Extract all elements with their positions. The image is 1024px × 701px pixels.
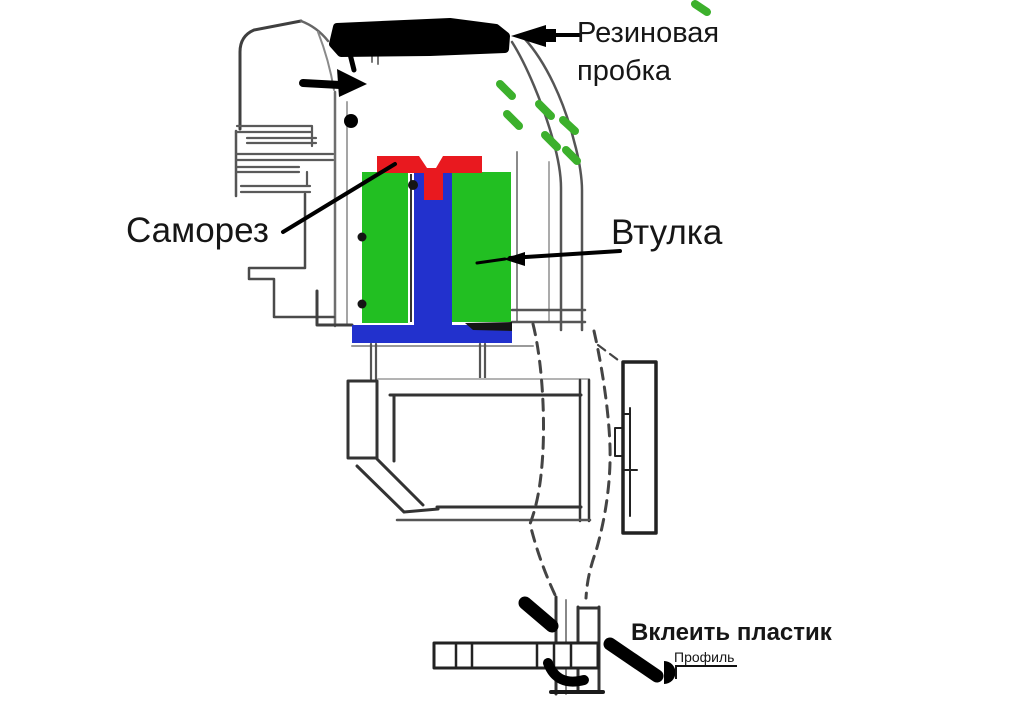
plug-dot-mark <box>344 114 358 128</box>
profile-underline <box>676 666 737 679</box>
glue-marker-stroke-upper <box>525 603 552 626</box>
left-arrow-head <box>337 69 367 97</box>
bushing-callout-line <box>510 251 620 258</box>
bushing-label: Втулка <box>611 213 722 253</box>
diagram-svg <box>0 0 1024 701</box>
rubber-plug-marker <box>333 22 506 53</box>
glue-marker-stroke-lower <box>610 644 657 676</box>
rubber-plug-label: Резиновая пробка <box>577 14 745 90</box>
diagram-canvas: Резиновая пробка Саморез Втулка Вклеить … <box>0 0 1024 701</box>
left-arrow-shaft <box>303 83 340 85</box>
profile-label: Профиль <box>674 649 734 665</box>
screw-label: Саморез <box>126 211 269 251</box>
glue-plastic-label: Вклеить пластик <box>631 619 832 647</box>
background-drawing <box>236 21 656 694</box>
